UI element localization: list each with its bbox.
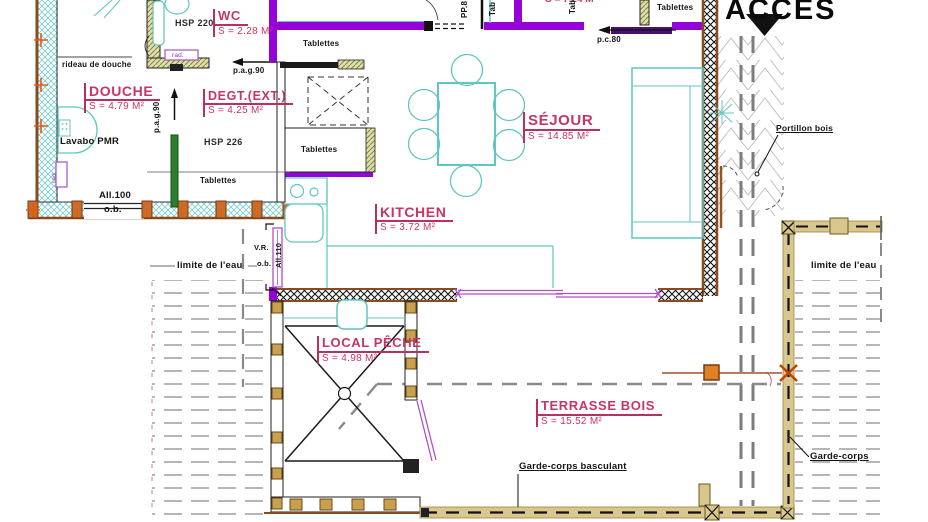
label-tablettes-topright: Tablettes bbox=[657, 3, 693, 12]
room-name-sejour: SÉJOUR bbox=[523, 112, 600, 131]
sejour-south-wall bbox=[277, 289, 703, 301]
label-hsp226: HSP 226 bbox=[204, 137, 243, 147]
room-name-wc: WC bbox=[213, 9, 248, 26]
plan-linework bbox=[0, 0, 928, 522]
label-rideau-de-douche: rideau de douche bbox=[62, 60, 131, 69]
label-pag90-degt: p.a.g.90 bbox=[152, 102, 161, 133]
label-tablettes-kitchen: Tablettes bbox=[301, 145, 337, 154]
room-label-degt: DEGT.(EXT.) S = 4.25 M² bbox=[203, 87, 293, 117]
label-rad-wc: rad. bbox=[172, 52, 184, 59]
room-name-douche: DOUCHE bbox=[84, 83, 160, 101]
label-limite-eau-left: limite de l'eau bbox=[177, 260, 242, 271]
room-area-sejour: S = 14.85 M² bbox=[523, 131, 600, 143]
sofa bbox=[632, 68, 703, 238]
room-label-kitchen: KITCHEN S = 3.72 M² bbox=[375, 204, 453, 234]
room-area-kitchen: S = 3.72 M² bbox=[375, 222, 453, 234]
label-pag90-wc: p.a.g.90 bbox=[233, 66, 264, 75]
label-limite-eau-right: limite de l'eau bbox=[811, 260, 876, 271]
bay-window bbox=[455, 289, 661, 298]
label-tab-vertical-1: Tab bbox=[488, 2, 497, 16]
label-tablettes-degt: Tablettes bbox=[200, 176, 236, 185]
label-lavabo-pmr: Lavabo PMR bbox=[60, 136, 119, 147]
room-label-sejour: SÉJOUR S = 14.85 M² bbox=[523, 112, 600, 143]
room-name-kitchen: KITCHEN bbox=[375, 204, 453, 222]
room-name-local-peche: LOCAL PÊCHE bbox=[317, 336, 429, 353]
peche-door bbox=[417, 400, 436, 461]
label-all100: All.100 bbox=[99, 190, 131, 201]
label-hsp220: HSP 220 bbox=[175, 18, 214, 28]
label-pp8: PP.8 bbox=[460, 1, 469, 18]
local-peche-structure bbox=[264, 300, 436, 513]
room-label-terrasse: TERRASSE BOIS S = 15.52 M² bbox=[536, 397, 662, 427]
label-ob-2: o.b. bbox=[257, 259, 271, 268]
room-label-douche: DOUCHE S = 4.79 M² bbox=[84, 83, 160, 113]
label-garde-corps: Garde-corps bbox=[810, 451, 869, 462]
room-area-terrasse: S = 15.52 M² bbox=[536, 416, 662, 428]
label-pc80: p.c.80 bbox=[597, 35, 621, 44]
room-label-local-peche: LOCAL PÊCHE S = 4.98 M² bbox=[317, 334, 429, 364]
room-area-wc: S = 2.28 M² bbox=[213, 26, 273, 38]
label-vr: V.R. bbox=[254, 243, 269, 252]
utility-line bbox=[662, 365, 782, 380]
exterior-wall-right bbox=[703, 0, 717, 296]
label-ob-1: o.b. bbox=[104, 204, 122, 215]
room-area-local-peche: S = 4.98 M² bbox=[317, 353, 429, 365]
water-hatch-left bbox=[150, 266, 264, 518]
room-area-douche: S = 4.79 M² bbox=[84, 101, 160, 113]
room-label-wc: WC S = 2.28 M² bbox=[213, 7, 273, 37]
floor-plan: ACCES S = 7.24 M² WC S = 2.28 M² DOUCHE … bbox=[0, 0, 928, 522]
label-garde-corps-basculant: Garde-corps basculant bbox=[519, 461, 627, 472]
label-rad-douche: rad. bbox=[51, 171, 58, 183]
room-name-terrasse: TERRASSE BOIS bbox=[536, 399, 662, 416]
ceiling-hatch-square bbox=[308, 77, 368, 125]
water-hatch-right bbox=[795, 280, 880, 518]
pp8-door bbox=[424, 0, 490, 31]
label-tab-vertical-2: Tab bbox=[568, 0, 577, 14]
access-title: ACCES bbox=[725, 0, 837, 27]
leader-lines bbox=[518, 437, 809, 507]
sliding-door-green bbox=[171, 135, 178, 207]
pc80-door bbox=[598, 26, 676, 34]
room-name-degt: DEGT.(EXT.) bbox=[203, 89, 293, 105]
label-all110: All.110 bbox=[274, 243, 283, 268]
room-area-degt: S = 4.25 M² bbox=[203, 105, 293, 117]
label-portillon-bois: Portillon bois bbox=[776, 123, 833, 133]
label-tablettes-top: Tablettes bbox=[303, 39, 339, 48]
